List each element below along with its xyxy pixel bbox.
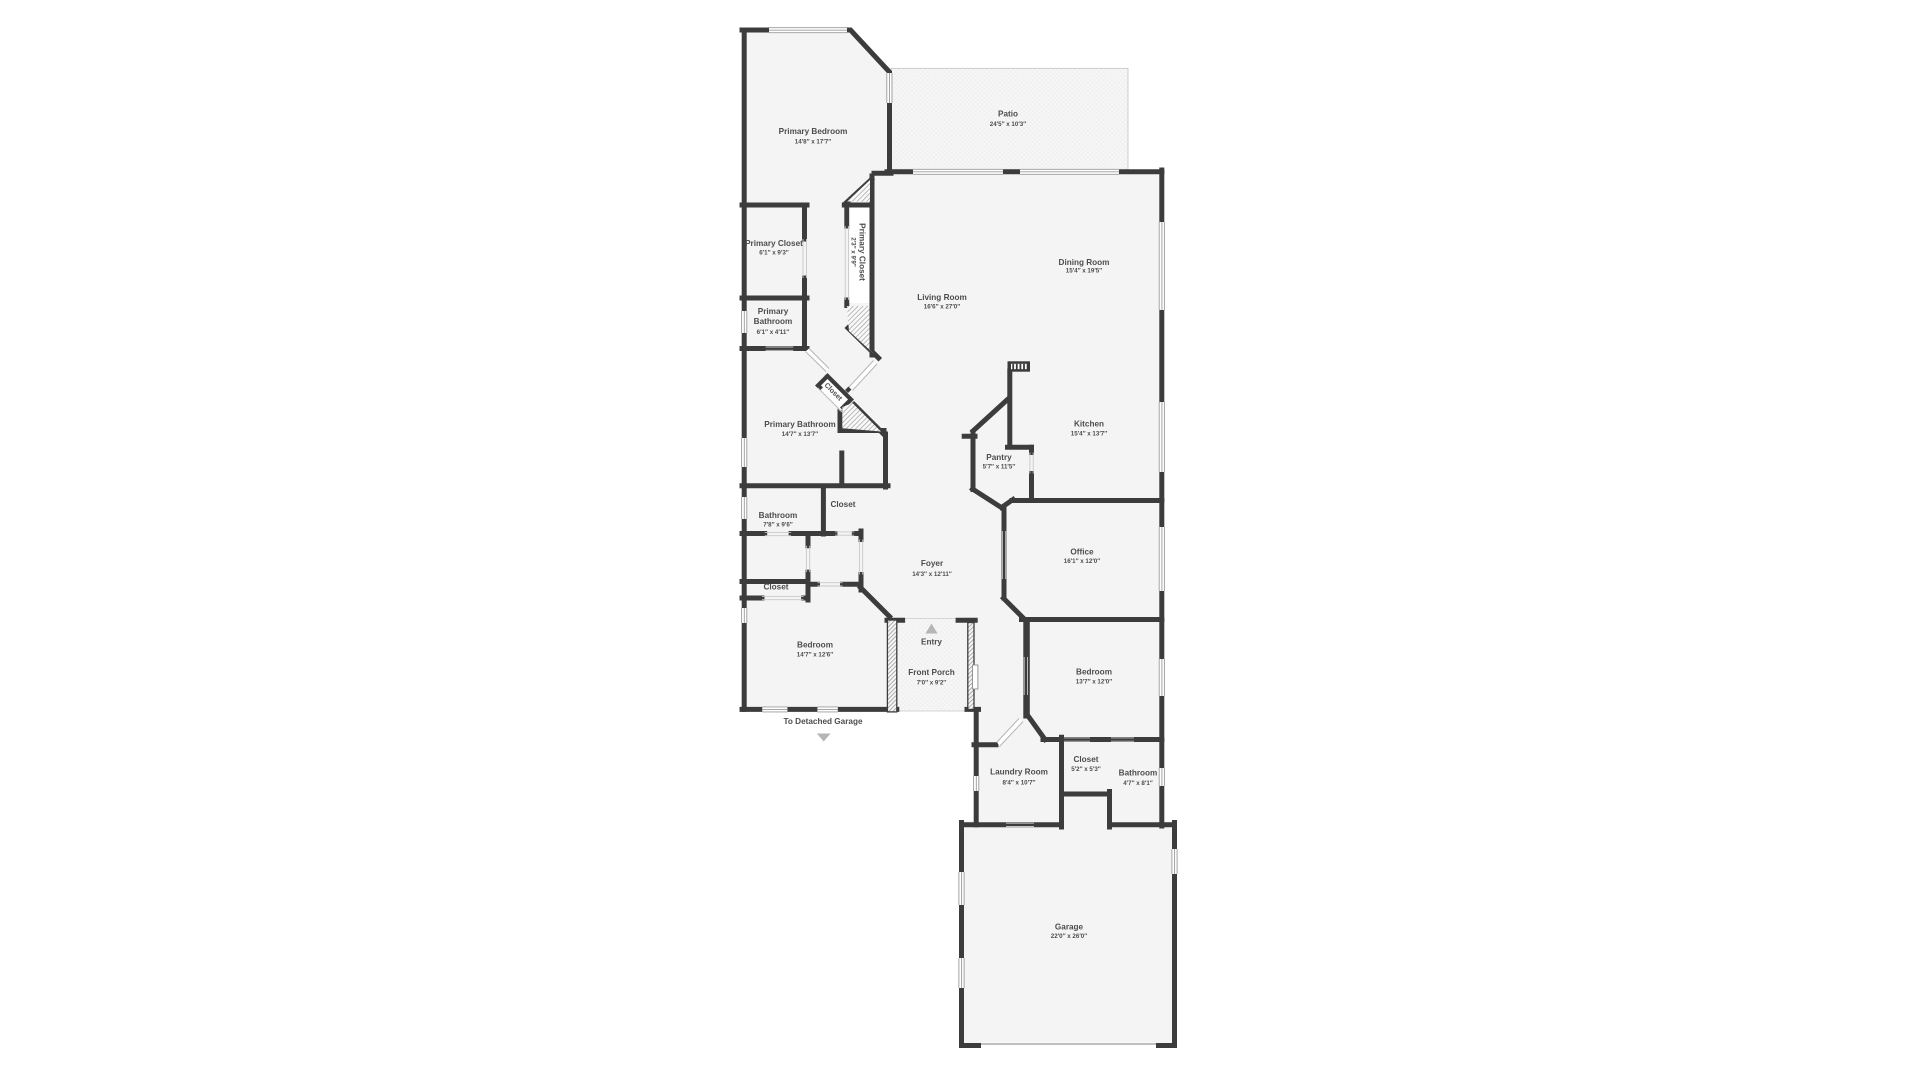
svg-text:Primary Bedroom: Primary Bedroom: [779, 127, 848, 136]
svg-text:Dining Room: Dining Room: [1059, 258, 1110, 267]
svg-text:Closet: Closet: [1073, 755, 1098, 764]
svg-text:15′4″ x 19′5″: 15′4″ x 19′5″: [1066, 268, 1102, 275]
svg-text:Bedroom: Bedroom: [1076, 668, 1112, 677]
svg-text:Laundry Room: Laundry Room: [990, 768, 1048, 777]
svg-text:Front Porch: Front Porch: [908, 668, 954, 677]
svg-text:Patio: Patio: [998, 110, 1018, 119]
svg-text:Bathroom: Bathroom: [759, 511, 798, 520]
svg-text:2′3″ x 9′9″: 2′3″ x 9′9″: [850, 237, 857, 267]
svg-text:14′8″ x 17′7″: 14′8″ x 17′7″: [795, 139, 831, 146]
svg-text:14′7″ x 12′6″: 14′7″ x 12′6″: [797, 652, 833, 659]
svg-text:To Detached Garage: To Detached Garage: [783, 717, 862, 726]
svg-text:Kitchen: Kitchen: [1074, 420, 1104, 429]
svg-text:Primary Closet: Primary Closet: [858, 223, 867, 281]
svg-text:Living Room: Living Room: [917, 293, 967, 302]
svg-text:Bathroom: Bathroom: [754, 317, 793, 326]
svg-text:24′5″ x 10′3″: 24′5″ x 10′3″: [990, 121, 1026, 128]
svg-text:6′1″ x 4′11″: 6′1″ x 4′11″: [757, 329, 790, 336]
svg-text:16′6″ x 27′0″: 16′6″ x 27′0″: [924, 304, 960, 311]
svg-text:Entry: Entry: [921, 638, 942, 647]
svg-text:15′4″ x 13′7″: 15′4″ x 13′7″: [1071, 431, 1107, 438]
svg-text:Office: Office: [1070, 548, 1094, 557]
svg-text:Foyer: Foyer: [921, 559, 944, 568]
svg-text:6′1″ x 9′3″: 6′1″ x 9′3″: [759, 250, 789, 257]
svg-text:13′7″ x 12′0″: 13′7″ x 12′0″: [1076, 679, 1112, 686]
svg-text:Pantry: Pantry: [986, 453, 1012, 462]
svg-text:7′0″ x 9′2″: 7′0″ x 9′2″: [917, 680, 947, 687]
svg-text:5′7″ x 11′5″: 5′7″ x 11′5″: [983, 464, 1016, 471]
svg-text:4′7″ x 8′1″: 4′7″ x 8′1″: [1123, 780, 1153, 787]
svg-text:22′0″ x 26′0″: 22′0″ x 26′0″: [1051, 933, 1087, 940]
svg-text:Bathroom: Bathroom: [1119, 769, 1158, 778]
svg-text:Closet: Closet: [763, 583, 788, 592]
svg-text:Closet: Closet: [830, 500, 855, 509]
svg-text:5′2″ x 5′3″: 5′2″ x 5′3″: [1071, 766, 1101, 773]
svg-text:7′8″ x 9′6″: 7′8″ x 9′6″: [763, 522, 793, 529]
svg-text:Bedroom: Bedroom: [797, 641, 833, 650]
svg-text:Primary Closet: Primary Closet: [745, 239, 803, 248]
svg-text:8′4″ x 10′7″: 8′4″ x 10′7″: [1003, 780, 1036, 787]
svg-text:Primary Bathroom: Primary Bathroom: [764, 420, 835, 429]
svg-text:16′1″ x 12′0″: 16′1″ x 12′0″: [1064, 558, 1100, 565]
svg-text:Primary: Primary: [758, 307, 789, 316]
svg-text:Garage: Garage: [1055, 923, 1084, 932]
svg-text:14′3″ x 12′11″: 14′3″ x 12′11″: [912, 571, 952, 578]
svg-text:14′7″ x 13′7″: 14′7″ x 13′7″: [782, 431, 818, 438]
